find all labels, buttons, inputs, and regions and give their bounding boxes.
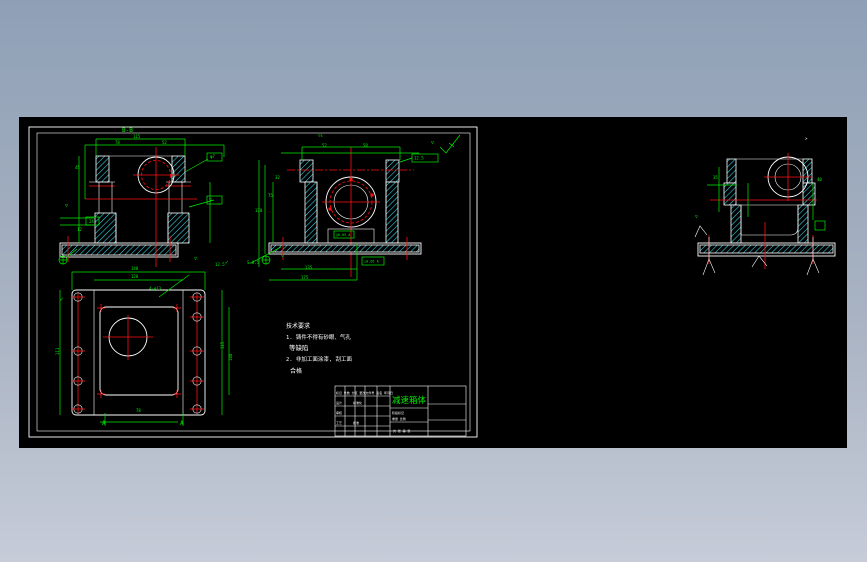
dim-label: S=0.5: [247, 260, 260, 265]
dim-label: 175: [301, 275, 309, 280]
dim-label: 4-φ13: [149, 286, 162, 291]
technical-notes: 技术要求 1. 铸件不得有砂眼、气孔 等缺陷 2. 非加工面涂漆, 刮工面 合格: [286, 322, 353, 375]
dim-label: 35: [713, 175, 718, 180]
part-title: 减速箱体: [392, 395, 427, 406]
dim-label: 78: [115, 140, 120, 145]
note-line: 2. 非加工面涂漆, 刮工面: [286, 355, 353, 363]
dim-label: 共 张 第 张: [393, 428, 410, 433]
dim-label: 45: [75, 165, 80, 170]
dim-label: ▽: [695, 214, 698, 220]
dim-label: 阶段标记: [392, 410, 404, 415]
dim-label: ✓: [225, 259, 229, 266]
dim-label: 设计: [336, 400, 342, 405]
dim-label: 工艺: [336, 420, 342, 425]
dim-label: ⊥0.05 A: [364, 260, 380, 264]
dim-label: ∥0.05 A: [336, 233, 351, 237]
view-top: [60, 272, 229, 426]
dim-label: 审核: [336, 410, 342, 415]
dim-label: 52: [162, 140, 167, 145]
dim-label: 148: [228, 353, 233, 361]
dim-label: ▽s: [318, 133, 323, 138]
dim-label: 128: [131, 274, 139, 279]
view-front-section: [59, 139, 224, 267]
dim-label: 12: [77, 227, 82, 232]
dim-label: φ7: [210, 154, 215, 159]
cad-workspace: 技术要求 1. 铸件不得有砂眼、气孔 等缺陷 2. 非加工面涂漆, 刮工面 合格: [0, 0, 867, 562]
dim-label: 40: [817, 177, 822, 182]
dim-label: 重量 比例: [392, 416, 406, 421]
dim-label: 标记 处数 分区 更改文件号 签名 年月日: [336, 390, 393, 395]
dim-label: ▽: [209, 197, 212, 203]
cad-drawing: 技术要求 1. 铸件不得有砂眼、气孔 等缺陷 2. 非加工面涂漆, 刮工面 合格: [19, 117, 847, 448]
dim-label: 135: [305, 265, 313, 270]
note-line: 合格: [290, 367, 302, 375]
dim-label: >: [805, 136, 808, 141]
dim-label: 标准化: [353, 400, 362, 405]
dim-label: 148: [131, 266, 139, 271]
dim-label: 75: [268, 193, 273, 198]
dim-label: ▽: [431, 140, 434, 146]
dim-label: 111: [55, 347, 60, 355]
dim-label: 115: [133, 134, 141, 139]
dim-label: B-B: [122, 127, 133, 134]
dim-label: 115: [220, 341, 225, 349]
note-line: 技术要求: [286, 322, 310, 330]
note-line: 等缺陷: [289, 343, 309, 352]
note-line: 1. 铸件不得有砂眼、气孔: [286, 333, 351, 341]
dim-label: 78: [136, 408, 141, 413]
dim-label: ▽: [281, 253, 284, 259]
dim-label: A: [102, 420, 106, 427]
dim-label: 32: [275, 175, 280, 180]
view-side-section: [695, 153, 835, 275]
dim-label: ✓: [60, 296, 64, 303]
dim-label: 170: [255, 208, 263, 213]
dim-label: ▽: [65, 203, 68, 209]
dim-label: 12.5: [414, 156, 424, 161]
dim-label: A: [180, 420, 184, 427]
dim-label: ▽: [194, 256, 197, 262]
dim-label: 58: [363, 143, 368, 148]
dim-label: 批准: [353, 420, 359, 425]
dim-label: 52: [322, 143, 327, 148]
dim-label: 24: [89, 219, 94, 224]
dim-label: 12.5: [215, 262, 225, 267]
drawing-canvas[interactable]: 技术要求 1. 铸件不得有砂眼、气孔 等缺陷 2. 非加工面涂漆, 刮工面 合格: [19, 117, 847, 448]
